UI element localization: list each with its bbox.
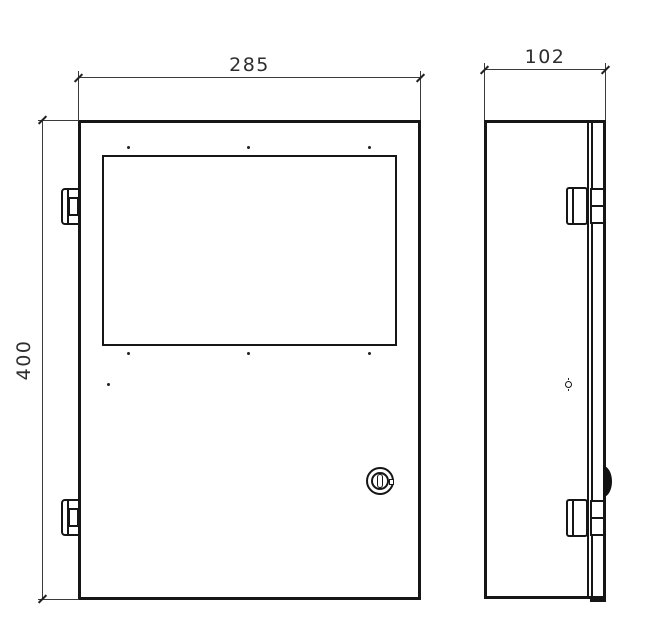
height-dimension-label: 400: [14, 330, 34, 390]
knuckle-divider: [592, 517, 603, 519]
depth-dimension-label: 102: [484, 47, 606, 67]
hinge-leaf: [566, 187, 588, 225]
hinge-pin-line: [572, 501, 574, 535]
hinge-front-bottom: [61, 499, 80, 536]
small-mark: [107, 383, 110, 386]
dimension-line: [42, 120, 43, 600]
hinge-knuckles: [590, 188, 605, 224]
width-dimension-label: 285: [78, 55, 421, 75]
hinge-leaf: [566, 499, 588, 537]
dimension-line: [78, 77, 421, 78]
hinge-knuckle: [68, 197, 79, 216]
hinge-knuckle: [68, 508, 79, 527]
technical-drawing-canvas: 285 102 400: [0, 0, 654, 642]
hinge-knuckles: [590, 500, 605, 536]
display-window-cutout: [102, 155, 397, 346]
screw-mark: [127, 146, 130, 149]
hinge-front-top: [61, 188, 80, 225]
mounting-hole: [565, 381, 572, 388]
hole-center-mark: [568, 378, 569, 380]
screw-mark: [247, 352, 250, 355]
screw-mark: [368, 146, 371, 149]
screw-mark: [247, 146, 250, 149]
screw-mark: [368, 352, 371, 355]
lock-knob-profile: [603, 466, 612, 497]
lock-keyhole-slot: [377, 474, 383, 488]
extension-line: [38, 599, 79, 600]
hinge-pin-line: [572, 189, 574, 223]
knuckle-divider: [592, 205, 603, 207]
dimension-line: [484, 69, 606, 70]
door-bottom-lip: [590, 599, 606, 602]
screw-mark: [127, 352, 130, 355]
extension-line: [38, 120, 79, 121]
hole-center-mark: [568, 389, 569, 391]
lock-notch: [389, 479, 394, 485]
